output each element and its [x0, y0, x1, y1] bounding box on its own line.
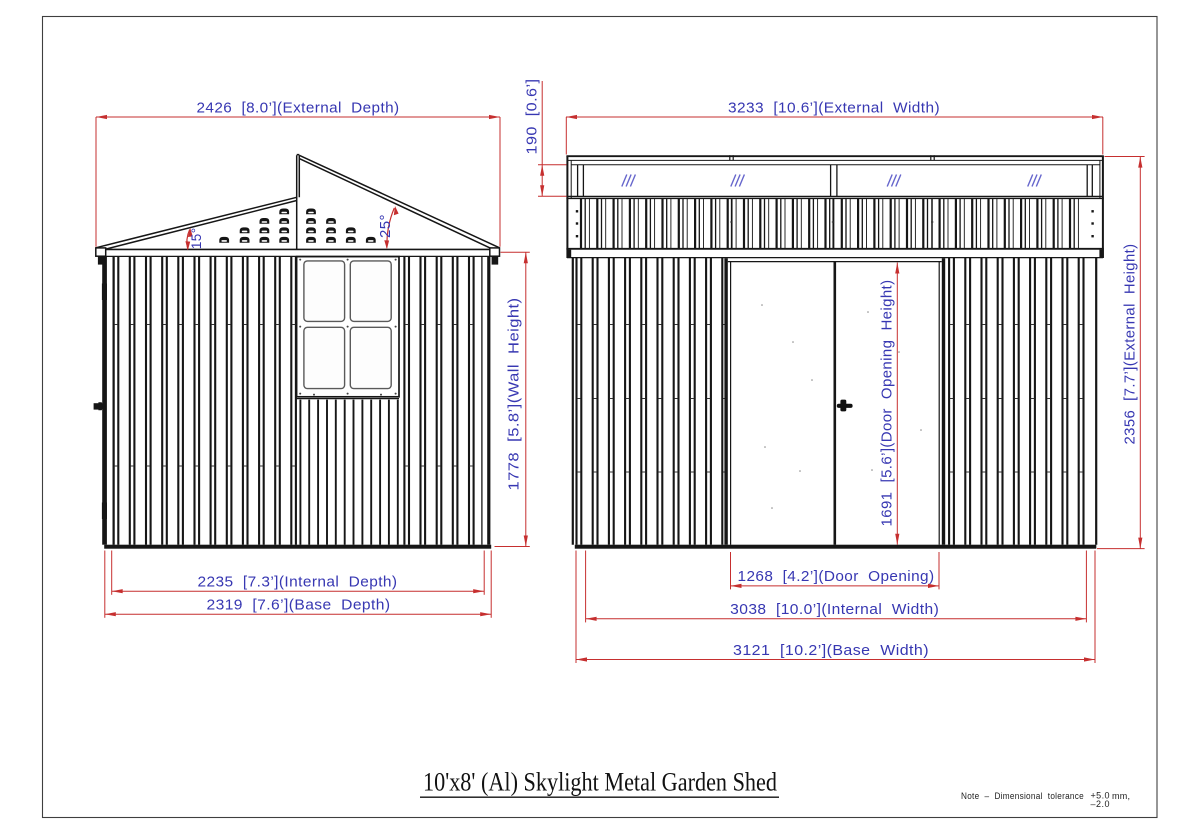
- svg-text:10'x8' (Al) Skylight Metal Gar: 10'x8' (Al) Skylight Metal Garden Shed: [423, 767, 777, 797]
- svg-text:2426 [8.0’](External Depth): 2426 [8.0’](External Depth): [197, 100, 400, 117]
- svg-text:2235 [7.3’](Internal Depth): 2235 [7.3’](Internal Depth): [198, 574, 398, 591]
- svg-text:3233 [10.6’](External Width): 3233 [10.6’](External Width): [728, 100, 940, 117]
- svg-text:Note – Dimensional toleranc: Note – Dimensional tolerance: [961, 791, 1084, 801]
- svg-text:3038 [10.0’](Internal Width): 3038 [10.0’](Internal Width): [730, 601, 939, 618]
- svg-text:190 [0.6’]: 190 [0.6’]: [524, 79, 541, 155]
- svg-text:–2.0: –2.0: [1091, 799, 1110, 809]
- svg-text:1268 [4.2’](Door Opening): 1268 [4.2’](Door Opening): [738, 568, 935, 585]
- svg-text:1691 [5.6’](Door Opening He: 1691 [5.6’](Door Opening Height): [879, 280, 896, 527]
- svg-text:15°: 15°: [189, 227, 204, 249]
- svg-text:3121 [10.2’](Base Width): 3121 [10.2’](Base Width): [733, 642, 929, 659]
- svg-text:1778 [5.8’](Wall Height): 1778 [5.8’](Wall Height): [506, 298, 523, 491]
- svg-text:2319 [7.6’](Base Depth): 2319 [7.6’](Base Depth): [207, 597, 391, 614]
- svg-text:2356 [7.7’](External Height): 2356 [7.7’](External Height): [1122, 244, 1139, 445]
- svg-text:mm,: mm,: [1112, 791, 1130, 801]
- svg-text:25°: 25°: [377, 214, 394, 238]
